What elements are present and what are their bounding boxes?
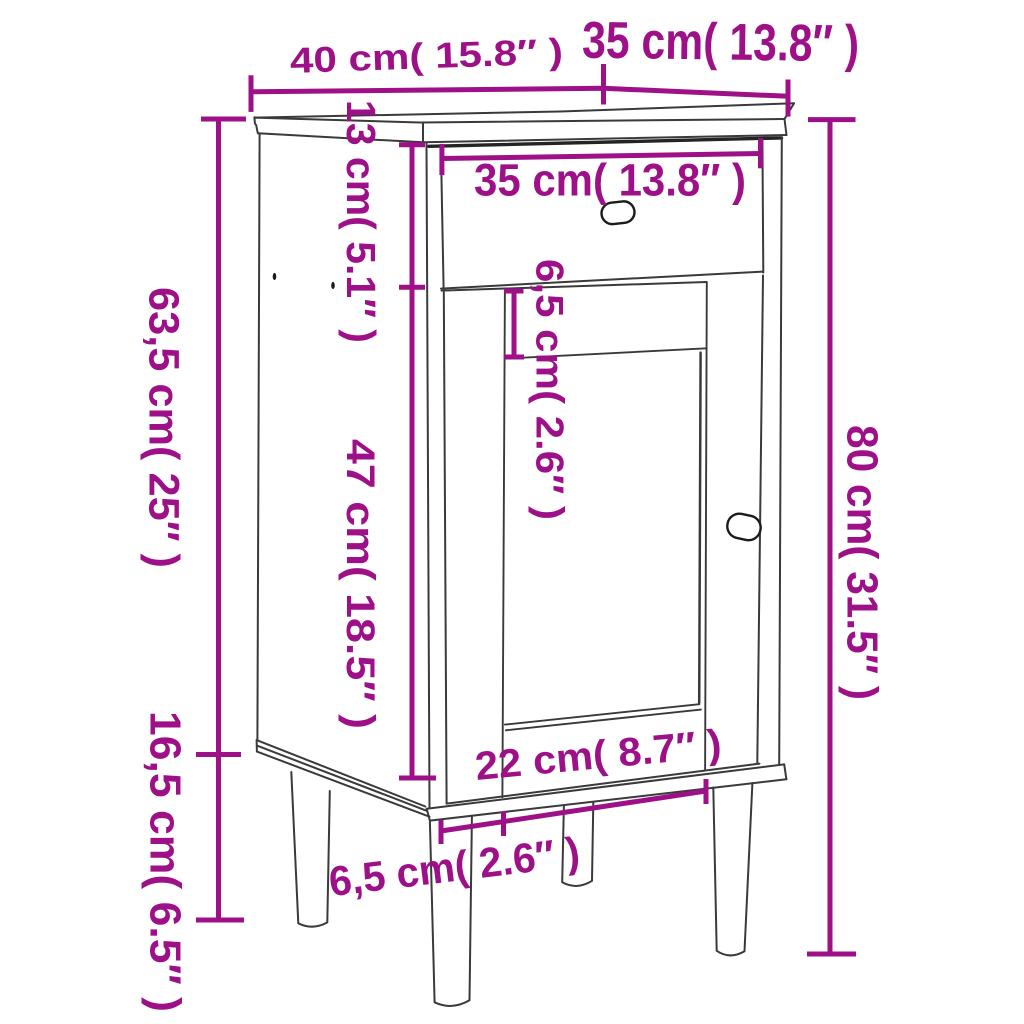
svg-text:35 cm( 13.8″ ): 35 cm( 13.8″ ) [582,12,860,74]
svg-text:6,5 cm( 2.6″ ): 6,5 cm( 2.6″ ) [528,259,571,520]
svg-text:80 cm( 31.5″ ): 80 cm( 31.5″ ) [838,425,887,700]
svg-text:47 cm( 18.5″ ): 47 cm( 18.5″ ) [338,439,382,729]
svg-text:63,5 cm( 25″ ): 63,5 cm( 25″ ) [139,287,187,568]
svg-text:16,5 cm( 6.5″ ): 16,5 cm( 6.5″ ) [141,711,190,1012]
svg-text:13 cm( 5.1″ ): 13 cm( 5.1″ ) [338,100,384,343]
svg-text:35 cm( 13.8″ ): 35 cm( 13.8″ ) [474,155,746,206]
